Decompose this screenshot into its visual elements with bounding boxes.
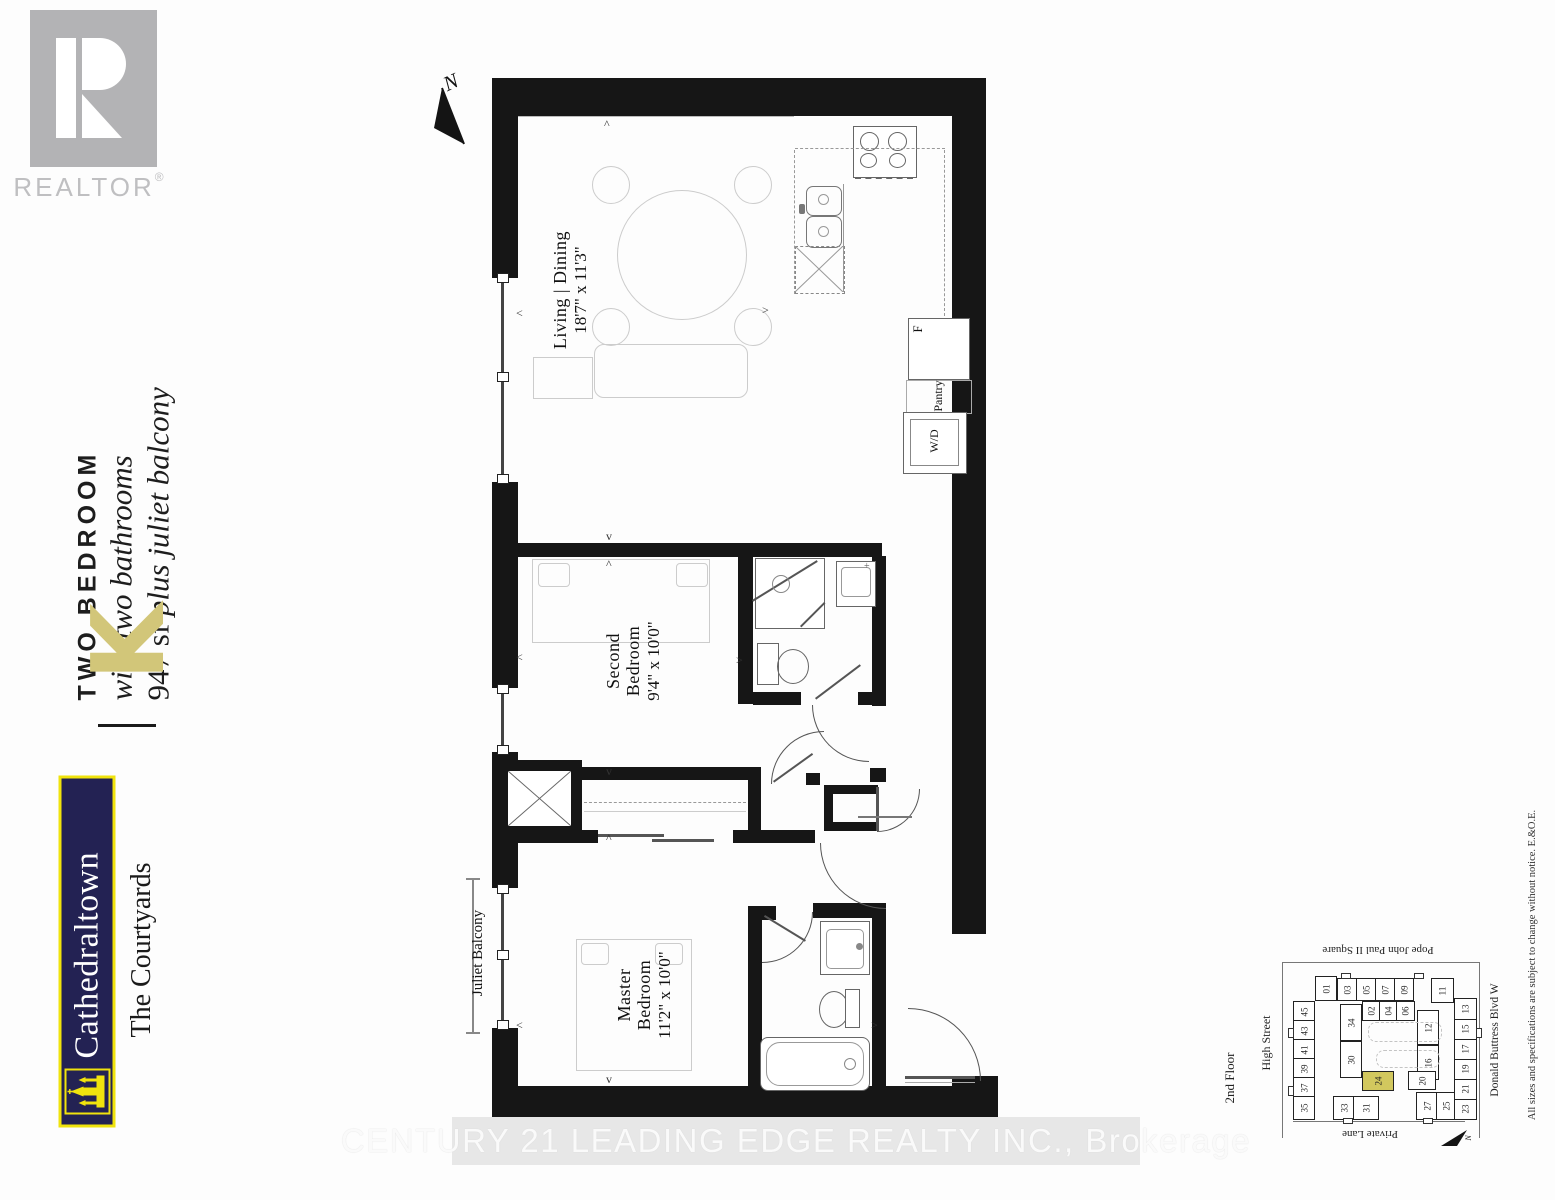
wall-segment [492,1028,518,1088]
window-hardware [497,1020,509,1030]
site-unit-17: 17 [1454,1038,1477,1060]
direction-marker: > [762,303,769,318]
wall-segment [952,78,986,934]
label-living-dining: Living | Dining 18'7" x 11'3" [548,215,592,365]
site-plan: 0103050709114543413937353331272523211917… [1288,968,1488,1148]
entrance-tick [1414,973,1424,979]
direction-marker: < [516,650,523,665]
wall-segment [492,78,518,278]
counter-edge [795,147,945,149]
entrance-tick [1288,1086,1294,1096]
label-juliet-balcony: Juliet Balcony [468,898,488,1008]
direction-marker: > [736,653,743,668]
direction-marker: > [871,1018,878,1033]
site-unit-01: 01 [1315,976,1337,1001]
fridge-label: F [909,317,927,341]
site-unit-39: 39 [1293,1058,1315,1079]
direction-marker: < [516,1018,523,1033]
closet-shelf [584,811,746,812]
shower-drain [772,575,790,593]
cathedraltown-logo: Cathedraltown [59,776,116,1128]
dining-chair [734,166,772,204]
site-unit-07: 07 [1375,978,1395,1001]
entrance-tick [1288,1028,1294,1038]
window-hardware [497,372,509,382]
direction-marker: < [516,306,523,321]
street-label-bottom: Private Lane [1315,1128,1425,1139]
courtyard-landscaping [1376,1050,1440,1068]
toilet-bowl [777,649,809,684]
wall-segment [824,822,878,831]
site-unit-13: 13 [1454,998,1477,1020]
site-unit-30: 30 [1340,1041,1362,1078]
direction-marker: ^ [606,557,612,572]
sink-faucet [799,204,805,214]
wall-segment [518,543,882,557]
door-arc-coat-closet [877,789,920,832]
door-leaf [815,664,861,699]
courtyard-landscaping [1368,1022,1442,1042]
direction-marker: v [606,764,612,779]
dining-chair [592,166,630,204]
vanity-faucet [856,943,863,950]
window-hardware [497,950,509,960]
sink-drain [818,226,829,237]
window-hardware [497,684,509,694]
wall-segment [748,780,761,832]
wall-segment [870,768,886,782]
wall-segment [733,830,815,843]
direction-marker: ^ [604,117,610,132]
site-unit-09: 09 [1394,978,1414,1001]
site-unit-24: 24 [1362,1071,1394,1091]
site-unit-41: 41 [1293,1039,1315,1060]
door-arc-hall [820,843,886,909]
stove-burner [889,153,906,168]
entrance-tick [1423,1118,1433,1124]
counter-edge [794,150,796,294]
entrance-tick [1341,973,1351,979]
site-unit-37: 37 [1293,1077,1315,1098]
divider-line [98,724,156,727]
entrance-tick [1343,1118,1353,1124]
wall-segment [492,482,518,688]
window-hardware [497,273,509,283]
site-unit-03: 03 [1337,978,1357,1001]
direction-marker: v [606,529,612,544]
unit-letter: K [68,582,188,702]
site-unit-33: 33 [1333,1096,1355,1120]
registered-mark: ® [155,170,167,184]
pillow [676,563,708,587]
toilet-tank [845,989,860,1028]
brokerage-watermark: CENTURY 21 LEADING EDGE REALTY INC., Bro… [452,1117,1140,1165]
site-unit-45: 45 [1293,1001,1315,1022]
entry-threshold-line [905,1082,975,1083]
direction-marker: ^ [606,831,612,846]
dining-chair [592,308,630,346]
site-unit-31: 31 [1353,1096,1379,1120]
north-arrow-icon [432,86,472,150]
washer-dryer-label: W/D [926,419,942,463]
floor-level-label: 2nd Floor [1219,1038,1239,1118]
sofa [594,344,748,398]
balcony-railing-end [466,1032,480,1034]
direction-marker: v [606,1072,612,1087]
realtor-text: REALTOR [13,172,154,203]
label-second-bedroom: Second Bedroom 9'4" x 10'0" [604,601,662,721]
realtor-wordmark: REALTOR® [6,172,174,203]
street-label-left: High Street [1256,998,1276,1088]
street-label-top: Pope John Paul II Square [1293,944,1463,955]
wall-segment [753,692,801,705]
wall-segment [492,78,986,116]
wall-segment [858,692,886,705]
hall-threshold [858,816,912,818]
dining-table [617,190,747,320]
window-hardware [497,474,509,484]
counter-edge [843,184,844,292]
entrance-tick [1476,1028,1482,1038]
site-unit-27: 27 [1416,1092,1438,1120]
door-leaf [876,787,879,831]
street-line-left [1282,962,1283,1138]
label-master-bedroom: Master Bedroom 11'2" x 10'0" [613,935,675,1055]
balcony-railing-end [466,878,480,880]
community-name: The Courtyards [121,850,163,1050]
sink-drain [818,194,829,205]
wall-segment [872,903,886,1086]
closet-rod [584,801,746,803]
counter-edge [944,150,946,316]
wall-segment [738,556,753,704]
closet-x-icon [508,771,571,826]
door-arc-entry [908,1008,981,1081]
window-hardware [497,745,509,755]
site-unit-06: 06 [1396,1001,1415,1021]
stove-front [855,177,913,179]
sliding-door [652,839,714,842]
site-unit-21: 21 [1454,1078,1477,1100]
site-unit-20: 20 [1408,1071,1436,1090]
floor-plan-sheet: { "branding": { "realtor_logo_text": "RE… [0,0,1555,1200]
dishwasher-x-icon [795,246,843,292]
site-unit-43: 43 [1293,1020,1315,1041]
entry-threshold [905,1076,975,1079]
pillow [581,943,609,965]
cathedral-icon [64,1069,110,1115]
sink-faucet: + [864,561,870,572]
stove-burner [860,153,877,168]
site-unit-23: 23 [1454,1098,1477,1120]
tub-drain [844,1058,856,1070]
disclaimer: All sizes and specifications are subject… [1523,775,1541,1155]
site-unit-19: 19 [1454,1058,1477,1080]
toilet-tank [757,643,779,685]
window-second-bedroom [501,688,504,752]
development-name: Cathedraltown [68,852,106,1059]
window-hardware [497,884,509,894]
street-line-top [1282,962,1480,963]
site-unit-15: 15 [1454,1018,1477,1040]
street-label-right: Donald Buttress Blvd W [1487,955,1505,1125]
wall-face-line [518,116,794,117]
site-unit-34: 34 [1340,1004,1362,1041]
site-unit-05: 05 [1356,978,1376,1001]
realtor-logo [30,10,157,167]
site-unit-11: 11 [1431,978,1454,1003]
site-unit-35: 35 [1293,1096,1315,1120]
pillow [538,563,570,587]
site-unit-25: 25 [1436,1092,1456,1120]
site-north-label: N [1462,1132,1474,1144]
